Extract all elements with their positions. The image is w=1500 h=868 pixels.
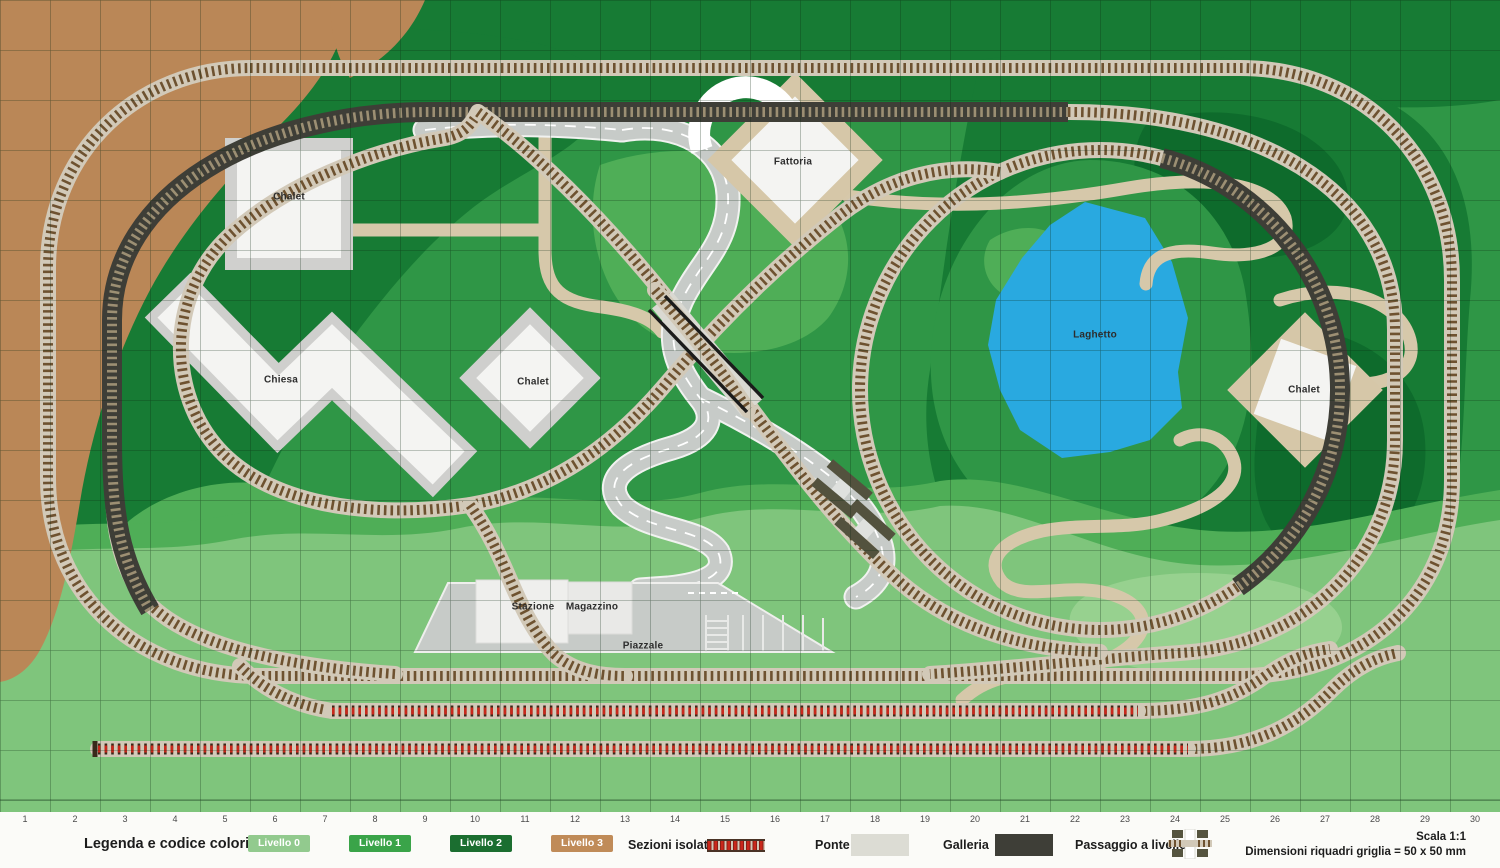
grid-overlay <box>0 0 1500 812</box>
ruler-number: 6 <box>272 814 277 824</box>
bridge-sample <box>851 834 909 856</box>
map-label: Laghetto <box>1073 330 1117 341</box>
ruler-number: 23 <box>1120 814 1130 824</box>
ruler-number: 13 <box>620 814 630 824</box>
tunnel-label: Galleria <box>943 838 989 852</box>
ruler-number: 9 <box>422 814 427 824</box>
ruler-number: 7 <box>322 814 327 824</box>
level-crossing-icon <box>1168 829 1212 859</box>
map-label: Stazione <box>512 602 555 613</box>
level-swatch: Livello 2 <box>450 835 512 852</box>
tunnel-sample <box>995 834 1053 856</box>
track-plan-page: ChaletChiesaChaletFattoriaLaghettoChalet… <box>0 0 1500 868</box>
level-swatch: Livello 1 <box>349 835 411 852</box>
ruler-number: 8 <box>372 814 377 824</box>
layout-map <box>0 0 1500 812</box>
ruler-number: 20 <box>970 814 980 824</box>
ruler-number: 12 <box>570 814 580 824</box>
ruler-number: 1 <box>22 814 27 824</box>
legend-bar: Legenda e codice colori: Livello 0Livell… <box>0 828 1500 868</box>
map-label: Chalet <box>517 377 549 388</box>
isolated-sections-label: Sezioni isolate <box>628 838 715 852</box>
level-swatch: Livello 3 <box>551 835 613 852</box>
ruler-number: 16 <box>770 814 780 824</box>
ruler-number: 5 <box>222 814 227 824</box>
map-label: Fattoria <box>774 157 812 168</box>
bridge-label: Ponte <box>815 838 850 852</box>
ruler-number: 24 <box>1170 814 1180 824</box>
ruler-number: 15 <box>720 814 730 824</box>
ruler-number: 17 <box>820 814 830 824</box>
ruler-number: 22 <box>1070 814 1080 824</box>
ruler-number: 19 <box>920 814 930 824</box>
map-label: Magazzino <box>566 602 618 613</box>
level-swatches: Livello 0Livello 1Livello 2Livello 3 <box>248 835 613 852</box>
level-swatch: Livello 0 <box>248 835 310 852</box>
grid-ruler: 1234567891011121314151617181920212223242… <box>0 812 1500 828</box>
ruler-number: 18 <box>870 814 880 824</box>
ruler-number: 26 <box>1270 814 1280 824</box>
ruler-number: 28 <box>1370 814 1380 824</box>
ruler-number: 25 <box>1220 814 1230 824</box>
ruler-number: 11 <box>520 814 529 824</box>
ruler-number: 2 <box>72 814 77 824</box>
scale-note: Scala 1:1 <box>1416 831 1466 843</box>
ruler-number: 30 <box>1470 814 1480 824</box>
ruler-number: 4 <box>172 814 177 824</box>
legend-title: Legenda e codice colori: <box>84 836 254 852</box>
ruler-number: 21 <box>1020 814 1030 824</box>
map-label: Chalet <box>1288 385 1320 396</box>
map-label: Chiesa <box>264 375 298 386</box>
map-label: Piazzale <box>623 641 664 652</box>
ruler-number: 3 <box>122 814 127 824</box>
ruler-number: 29 <box>1420 814 1430 824</box>
ruler-number: 14 <box>670 814 680 824</box>
ruler-number: 10 <box>470 814 480 824</box>
map-label: Chalet <box>273 192 305 203</box>
isolated-track-sample <box>707 839 765 852</box>
ruler-number: 27 <box>1320 814 1330 824</box>
grid-dimensions-note: Dimensioni riquadri griglia = 50 x 50 mm <box>1245 846 1466 858</box>
